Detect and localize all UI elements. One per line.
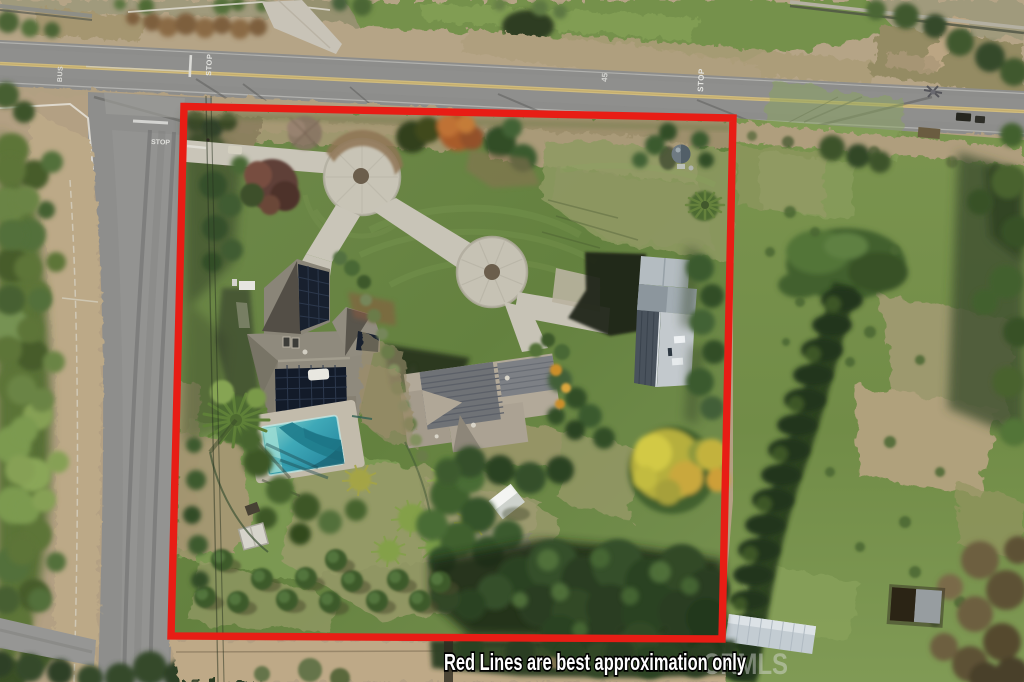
svg-text:STOP: STOP <box>204 53 214 76</box>
svg-text:Red Lines are best approximati: Red Lines are best approximation only <box>444 649 746 675</box>
svg-text:STOP: STOP <box>696 68 706 92</box>
svg-text:BUS: BUS <box>57 66 65 83</box>
svg-text:45: 45 <box>600 72 609 82</box>
svg-text:STOP: STOP <box>151 139 170 147</box>
